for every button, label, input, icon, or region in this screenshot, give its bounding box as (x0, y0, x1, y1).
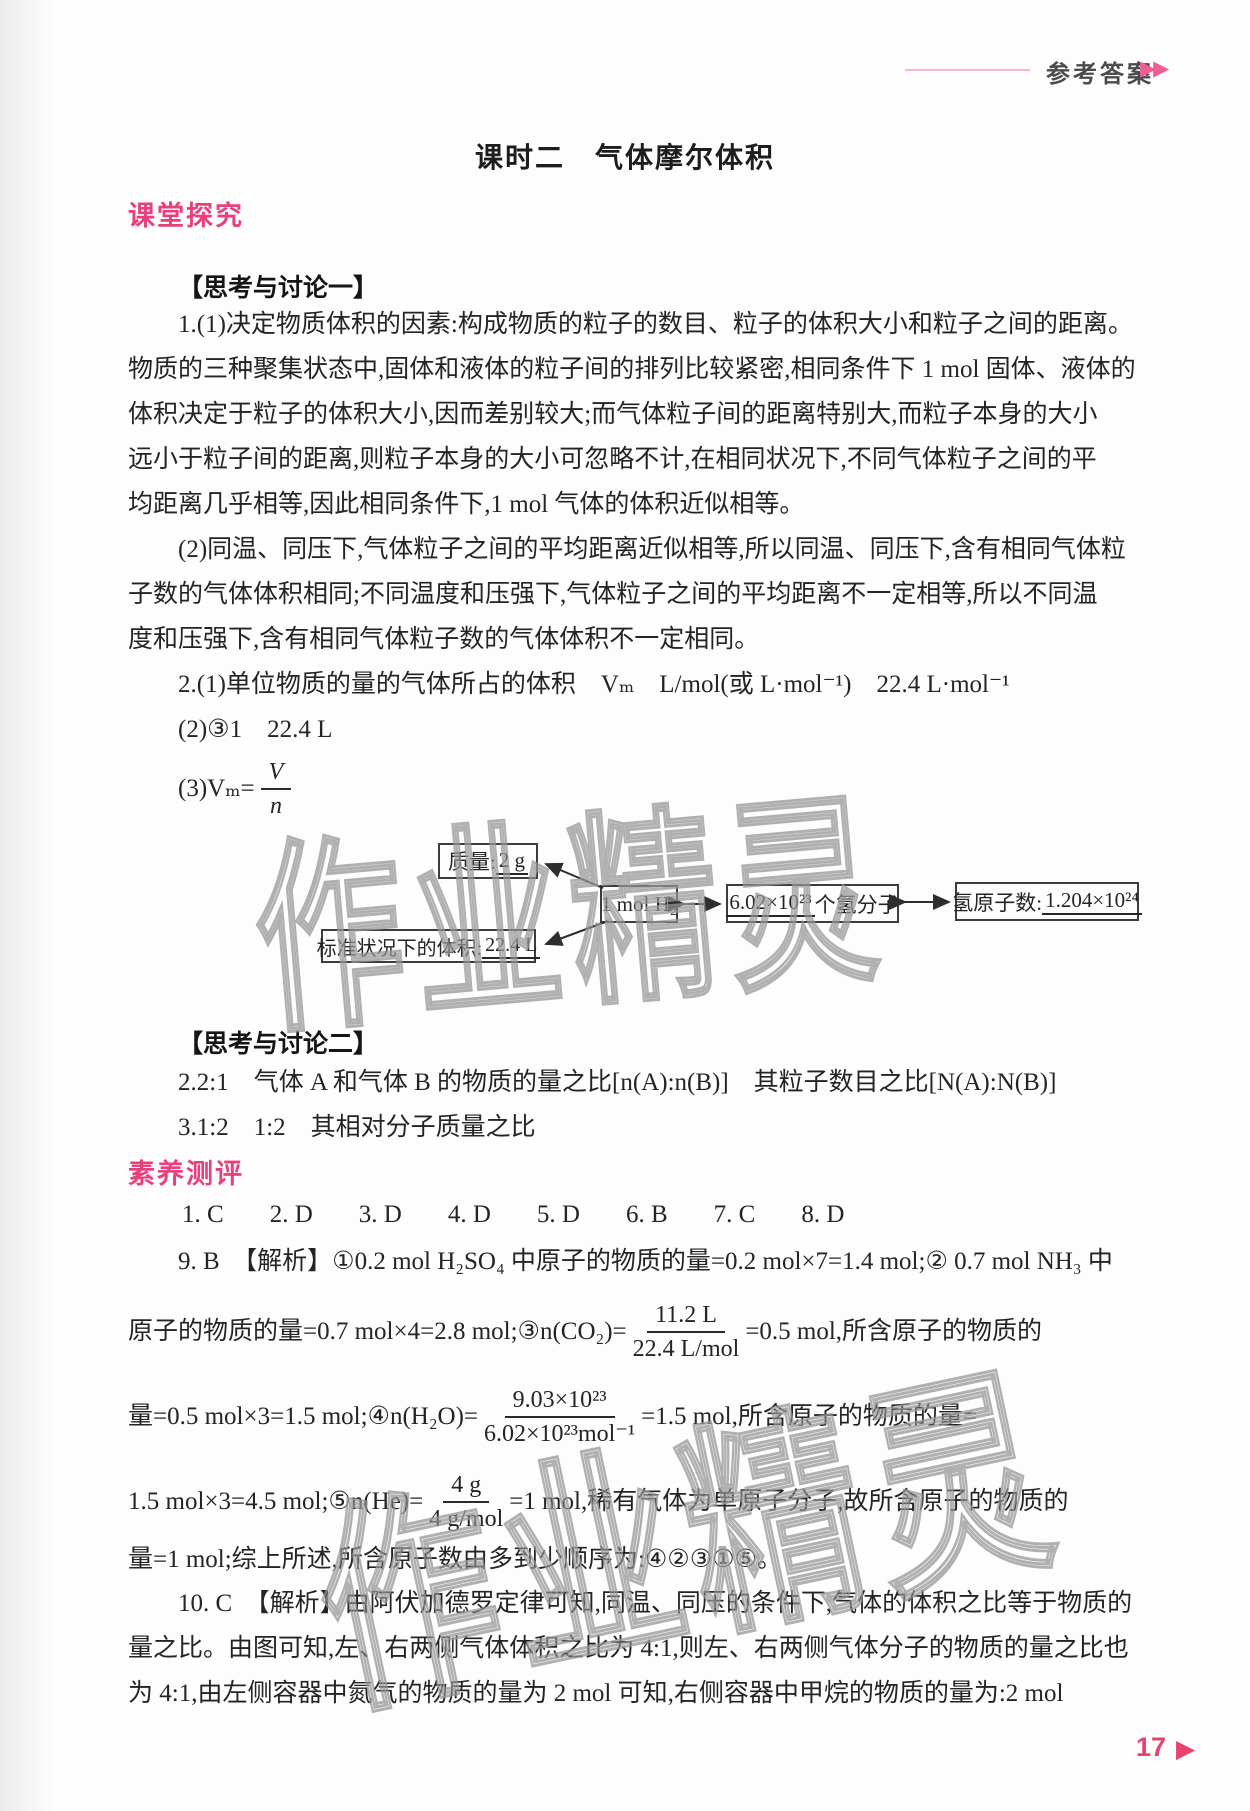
choice-answer: 5. D (537, 1201, 580, 1229)
page-title: 课时二 气体摩尔体积 (0, 136, 1250, 176)
diagram-box-volume: 标准状况下的体积: 22.4 L (321, 929, 536, 963)
answer-line: 3.1:2 1:2 其相对分子质量之比 (178, 1111, 536, 1145)
center-label: 1 mol H₂ (601, 892, 677, 917)
choice-answer: 7. C (714, 1201, 756, 1229)
fraction-numerator: 9.03×10²³ (505, 1386, 615, 1418)
double-arrow-icon: ▶▶ (1140, 56, 1166, 80)
diagram-box-molecules: 6.02×10²³个氢分子 (726, 884, 899, 923)
atoms-value: 1.204×10²⁴ (1042, 888, 1142, 915)
fraction-denominator: n (270, 790, 282, 820)
choice-answer: 4. D (448, 1201, 491, 1229)
body-line: (2)同温、同压下,气体粒子之间的平均距离近似相等,所以同温、同压下,含有相同气… (178, 533, 1126, 567)
body-line: 1.(1)决定物质体积的因素:构成物质的粒子的数目、粒子的体积大小和粒子之间的距… (178, 308, 1133, 342)
section-heading-classroom: 课堂探究 (128, 194, 244, 233)
molecules-value: 6.02×10²³ (726, 890, 814, 917)
choice-answer: 2. D (270, 1201, 313, 1229)
diagram-box-mass: 质量: 2 g (438, 843, 538, 879)
diagram-box-atoms: 氢原子数:1.204×10²⁴ (955, 882, 1139, 921)
formula-text: (3)Vₘ= (178, 772, 255, 806)
solution-line: 10. C 【解析】由阿伏加德罗定律可知,同温、同压的条件下,气体的体积之比等于… (178, 1587, 1132, 1621)
choice-answers-row: 1. C 2. D 3. D 4. D 5. D 6. B 7. C 8. D (182, 1201, 844, 1229)
fraction-numerator: 11.2 L (647, 1301, 725, 1333)
answer-book-page: 参考答案 ▶▶ 课时二 气体摩尔体积 课堂探究 【思考与讨论一】 1.(1)决定… (0, 0, 1250, 1811)
solution-text: =0.5 mol,所含原子的物质的 (745, 1315, 1042, 1349)
fraction-numerator: V (261, 758, 292, 790)
choice-answer: 6. B (626, 1201, 668, 1229)
solution-text: 原子的物质的量=0.7 mol×4=2.8 mol;③n(CO₂)= (128, 1315, 627, 1349)
header-label: 参考答案 (1046, 54, 1154, 89)
solution-line: 为 4:1,由左侧容器中氮气的物质的量为 2 mol 可知,右侧容器中甲烷的物质… (128, 1677, 1063, 1711)
body-line: 度和压强下,含有相同气体粒子数的气体体积不一定相同。 (128, 623, 759, 657)
header-rule (905, 69, 1030, 71)
arrow-to-volume (546, 921, 608, 944)
fraction: V n (261, 758, 292, 821)
answer-line: 2.2:1 气体 A 和气体 B 的物质的量之比[n(A):n(B)] 其粒子数… (178, 1066, 1056, 1100)
think1-heading: 【思考与讨论一】 (178, 268, 378, 304)
fraction-denominator: 6.02×10²³mol⁻¹ (484, 1418, 635, 1448)
arrow-to-mass (546, 864, 603, 888)
solution-text: =1.5 mol,所含原子的物质的量= (641, 1400, 977, 1434)
solution-line: 1.5 mol×3=4.5 mol;⑤n(He)= 4 g 4 g/mol =1… (128, 1469, 1069, 1535)
mass-label: 质量: (448, 846, 496, 876)
solution-text: 量=0.5 mol×3=1.5 mol;④n(H₂O)= (128, 1400, 478, 1434)
formula-line: (3)Vₘ= V n (178, 756, 297, 822)
body-line: 远小于粒子间的距离,则粒子本身的大小可忽略不计,在相同状况下,不同气体粒子之间的… (128, 443, 1097, 477)
answer-line: 2.(1)单位物质的量的气体所占的体积 Vₘ L/mol(或 L·mol⁻¹) … (178, 668, 1010, 702)
choice-answer: 8. D (801, 1201, 844, 1229)
fraction: 9.03×10²³ 6.02×10²³mol⁻¹ (484, 1386, 635, 1449)
section-heading-assessment: 素养测评 (128, 1152, 244, 1191)
solution-text: 1.5 mol×3=4.5 mol;⑤n(He)= (128, 1485, 423, 1519)
body-line: 物质的三种聚集状态中,固体和液体的粒子间的排列比较紧密,相同条件下 1 mol … (128, 353, 1136, 387)
answer-line: (2)③1 22.4 L (178, 713, 332, 747)
page-number: 17 (1136, 1732, 1166, 1763)
body-line: 均距离几乎相等,因此相同条件下,1 mol 气体的体积近似相等。 (128, 488, 804, 522)
fraction: 4 g 4 g/mol (429, 1471, 503, 1534)
fraction-numerator: 4 g (443, 1471, 489, 1503)
solution-line: 原子的物质的量=0.7 mol×4=2.8 mol;③n(CO₂)= 11.2 … (128, 1299, 1042, 1365)
molecules-suffix: 个氢分子 (815, 889, 899, 919)
page-arrow-icon: ▶ (1176, 1734, 1195, 1763)
fraction-denominator: 4 g/mol (429, 1503, 503, 1533)
volume-label: 标准状况下的体积: (317, 932, 483, 961)
solution-line: 9. B 【解析】①0.2 mol H₂SO₄ 中原子的物质的量=0.2 mol… (178, 1245, 1113, 1279)
choice-answer: 1. C (182, 1201, 224, 1229)
solution-line: 量=1 mol;综上所述,所含原子数由多到少顺序为:④②③①⑤。 (128, 1543, 782, 1577)
atoms-label: 氢原子数: (952, 887, 1042, 917)
solution-line: 量之比。由图可知,左、右两侧气体体积之比为 4:1,则左、右两侧气体分子的物质的… (128, 1632, 1129, 1666)
solution-text: =1 mol,稀有气体为单原子分子,故所含原子的物质的 (509, 1485, 1068, 1519)
volume-value: 22.4 L (482, 934, 540, 959)
diagram-box-center: 1 mol H₂ (600, 885, 678, 923)
fraction: 11.2 L 22.4 L/mol (633, 1301, 740, 1364)
mass-value: 2 g (496, 848, 528, 875)
body-line: 子数的气体体积相同;不同温度和压强下,气体粒子之间的平均距离不一定相等,所以不同… (128, 578, 1097, 612)
think2-heading: 【思考与讨论二】 (178, 1024, 378, 1060)
solution-line: 量=0.5 mol×3=1.5 mol;④n(H₂O)= 9.03×10²³ 6… (128, 1384, 977, 1450)
fraction-denominator: 22.4 L/mol (633, 1333, 740, 1363)
body-line: 体积决定于粒子的体积大小,因而差别较大;而气体粒子间的距离特别大,而粒子本身的大… (128, 398, 1097, 432)
choice-answer: 3. D (359, 1201, 402, 1229)
